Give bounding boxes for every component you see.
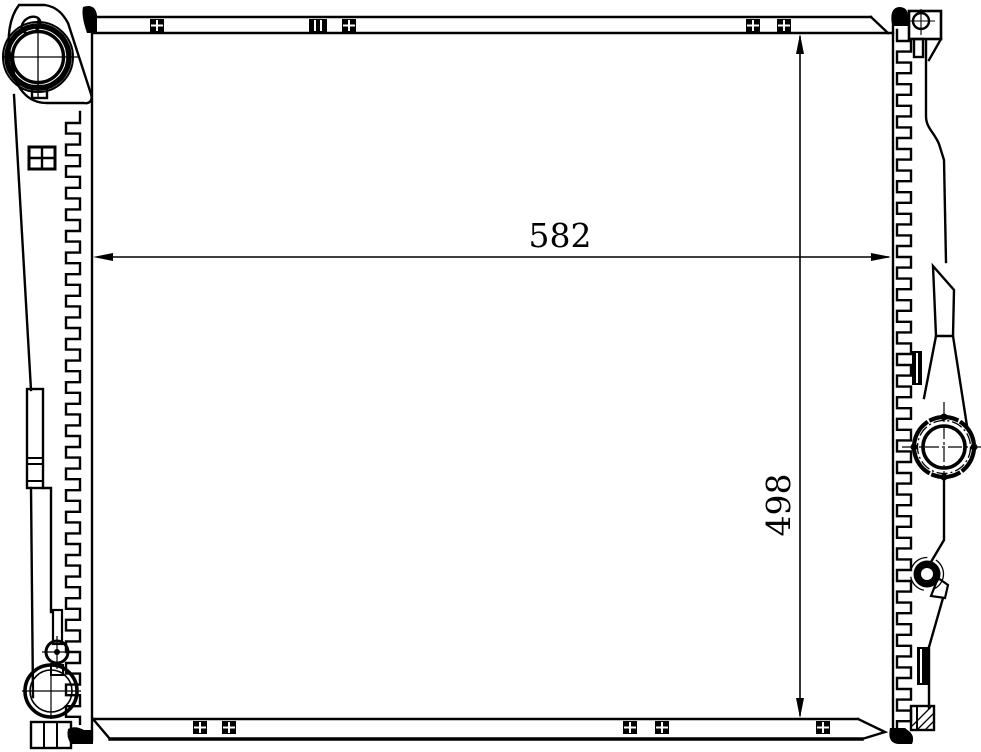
right-tank-wall-lower (929, 598, 943, 708)
bottom-clip-5 (816, 721, 830, 734)
right-tank-wall-below-pipe (931, 478, 944, 562)
radiator-technical-drawing: 582 498 (0, 0, 981, 752)
top-clip-2 (309, 19, 327, 32)
right-tank-wall-mid (924, 336, 967, 426)
right-upper-tab (912, 351, 922, 385)
height-arrow-top (796, 34, 804, 54)
width-arrow-left (93, 253, 113, 261)
height-dimension-value: 498 (759, 474, 798, 537)
right-serration (897, 30, 911, 728)
left-tank-wall-lower (31, 488, 33, 697)
right-tank (902, 9, 981, 730)
bottom-clip-4 (655, 721, 669, 734)
top-clip-1 (150, 19, 164, 32)
top-clip-5 (777, 19, 791, 32)
outlet-pipe-boss (22, 663, 81, 719)
bottom-band-left-chamfer (93, 719, 110, 739)
inspection-window (29, 147, 55, 169)
filler-cap (2, 19, 80, 97)
inlet-pipe-boss (902, 402, 981, 492)
bottom-clip-2 (222, 721, 236, 734)
top-band-right-chamfer (871, 17, 888, 33)
bottom-right-bracket (911, 706, 934, 730)
left-serration (66, 112, 80, 724)
left-tank-wall-upper (14, 95, 31, 390)
height-arrow-bottom (796, 698, 804, 718)
left-gasket (66, 112, 93, 744)
right-serration-foot (889, 728, 913, 744)
right-lower-tab (917, 647, 928, 685)
right-round-boss (911, 558, 949, 599)
bottom-clip-1 (193, 721, 207, 734)
top-left-corner-hook (83, 6, 98, 33)
right-serration-top-cap (891, 7, 909, 26)
top-clip-3 (342, 19, 356, 32)
top-clip-4 (746, 19, 760, 32)
drawing-canvas: 582 498 (0, 0, 981, 752)
core-outline (92, 26, 893, 740)
left-bottom-foot (31, 722, 71, 748)
right-wedge-bracket (933, 266, 954, 336)
dimension-width: 582 (93, 216, 891, 261)
left-tank (2, 5, 92, 748)
right-tank-wall-upper (926, 40, 946, 262)
bottom-header-tank (93, 719, 885, 739)
top-header-tank (83, 6, 894, 33)
width-arrow-right (871, 253, 891, 261)
bottom-clip-3 (623, 721, 637, 734)
bottom-band-right-chamfer (858, 719, 885, 739)
width-dimension-value: 582 (529, 216, 592, 255)
dimension-height: 498 (759, 34, 804, 718)
